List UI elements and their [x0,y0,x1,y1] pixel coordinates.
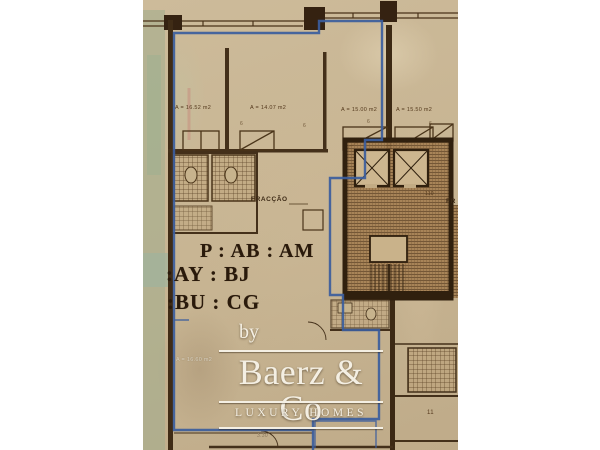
fraccao-label: FRACÇÃO [251,197,288,204]
area-label-room4: A = 15.50 m2 [396,108,432,114]
room-marker: 6 [429,122,432,127]
area-label-room2: A = 14.07 m2 [250,106,286,112]
room-11-number: 11 [427,410,434,416]
watermark-rule-bottom [219,427,383,429]
page: { "floorplan": { "area_labels": { "room1… [0,0,600,450]
bathrooms [172,153,323,233]
watermark-rule-middle [219,401,383,403]
area-label-living: A = 16.60 m2 [176,358,212,364]
floorplan-photo: A = 16.52 m2 A = 14.07 m2 A = 15.00 m2 A… [143,0,458,450]
stamp-line-2: :AY : BJ [166,264,251,285]
area-label-room3: A = 15.00 m2 [341,108,377,114]
balcony-rails [143,13,458,26]
stair-elevator-core [345,140,458,298]
watermark-tagline: LUXURY HOMES [218,408,384,420]
core-number: 110 [425,192,434,197]
room-marker: 6 [240,122,243,127]
room-marker: 6 [303,124,306,129]
stamp-line-3: :BU : CG [167,292,260,313]
fraccao-label-right: FR [446,199,456,206]
dimension-label: 3.30 [257,434,268,439]
watermark-by: by [219,322,279,342]
stamp-line-1: P : AB : AM [200,241,314,261]
green-wash [143,10,169,450]
area-label-room1: A = 16.52 m2 [175,106,211,112]
room-marker: 6 [367,120,370,125]
